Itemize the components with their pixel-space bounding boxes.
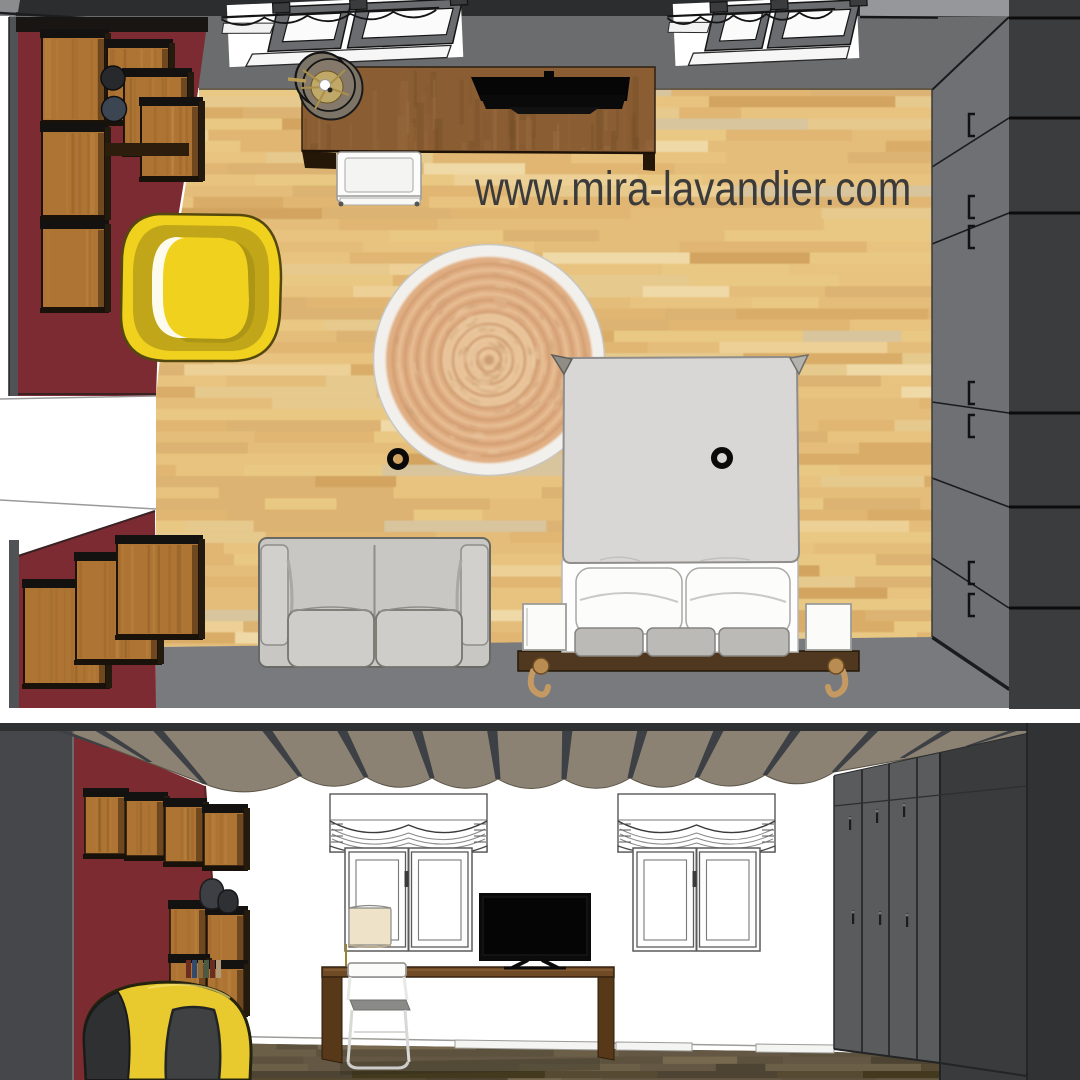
svg-text:www.mira-lavandier.com: www.mira-lavandier.com (474, 163, 911, 216)
